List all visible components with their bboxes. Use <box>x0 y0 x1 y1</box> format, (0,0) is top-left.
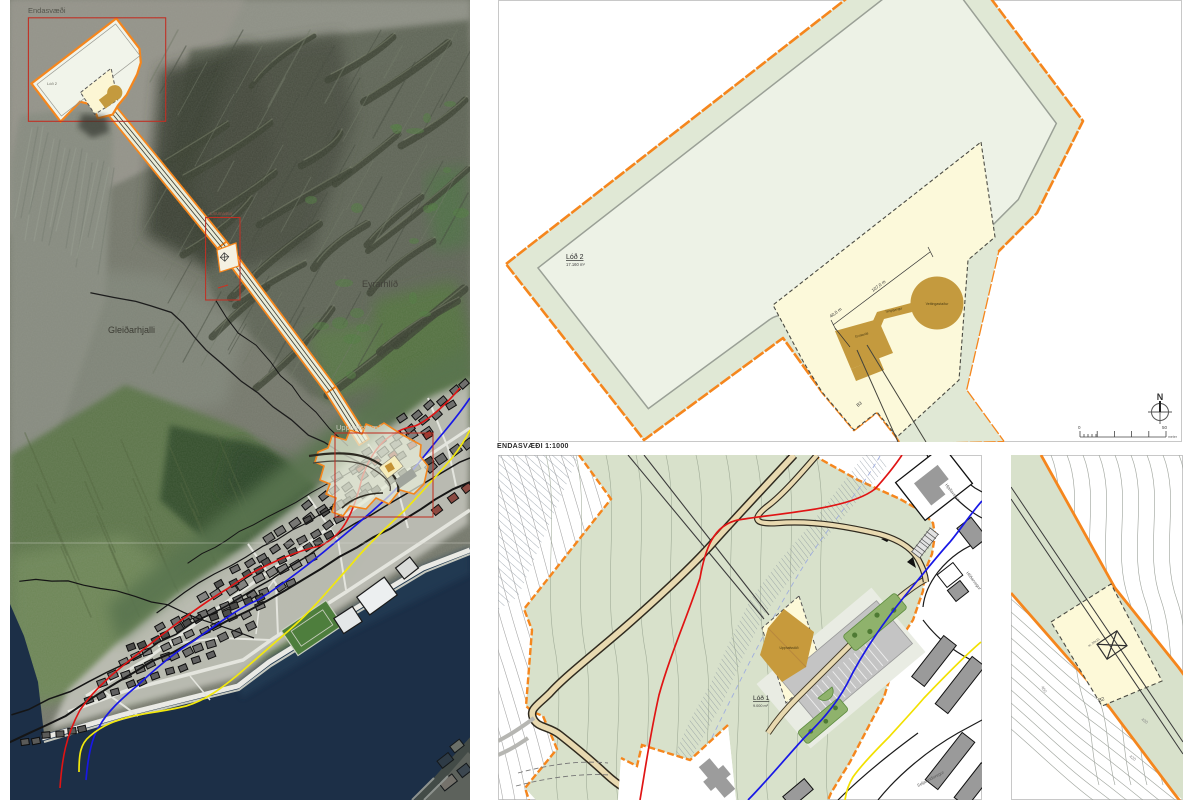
svg-text:Veitingastaður: Veitingastaður <box>926 301 950 306</box>
svg-text:N: N <box>1157 392 1164 402</box>
svg-text:Lóð 2: Lóð 2 <box>47 81 58 86</box>
svg-text:Endasvæði: Endasvæði <box>28 6 66 15</box>
svg-text:Gleiðarhjalli: Gleiðarhjalli <box>108 325 155 335</box>
svg-text:Línumastur: Línumastur <box>210 211 233 216</box>
svg-text:Upphafssvæði: Upphafssvæði <box>336 423 384 432</box>
svg-text:meter: meter <box>1168 435 1178 439</box>
svg-text:Lóð 2: Lóð 2 <box>566 253 584 261</box>
svg-text:50: 50 <box>1162 425 1168 430</box>
svg-text:Eyrarhlíð: Eyrarhlíð <box>362 279 398 289</box>
svg-text:Lóð 1: Lóð 1 <box>753 694 770 702</box>
svg-text:Upphafsstöð: Upphafsstöð <box>779 645 798 650</box>
svg-text:17.160 m²: 17.160 m² <box>566 262 585 267</box>
svg-text:9.000 m²: 9.000 m² <box>753 704 769 708</box>
